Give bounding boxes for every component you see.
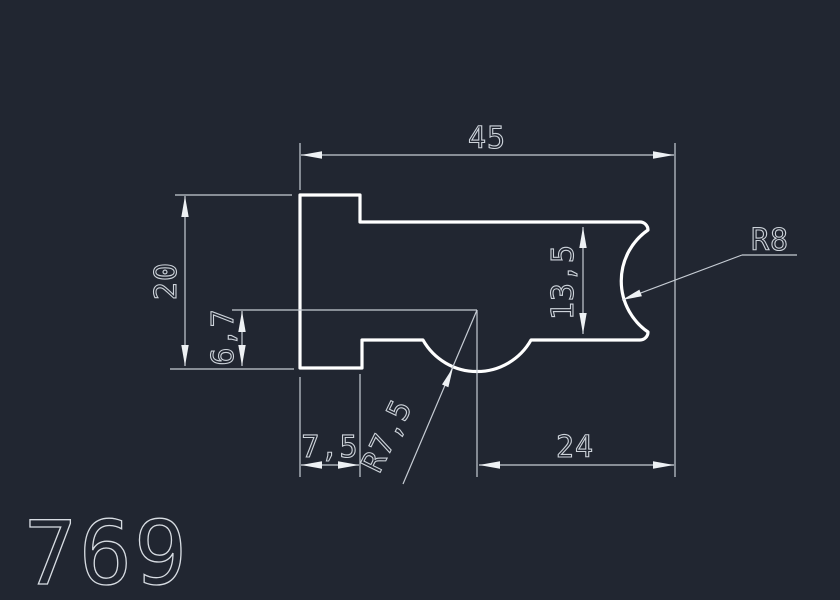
dim-label-right-width: 24 <box>556 430 594 465</box>
dim-label-left-height: 20 <box>149 262 184 300</box>
dim-label-right-height: 13,5 <box>546 244 581 320</box>
dim-label-step-height: 6,7 <box>206 308 241 365</box>
arrowhead-20-top <box>181 196 188 217</box>
dim-label-total-width: 45 <box>468 121 506 156</box>
arrowhead-r8 <box>622 290 642 300</box>
arrowhead-20-bottom <box>181 345 188 366</box>
dim-label-radius-bottom: R7,5 <box>355 394 420 478</box>
dim-label-radius-right: R8 <box>751 223 789 258</box>
leader-line-r75 <box>403 310 477 484</box>
arrowhead-45-right <box>653 151 674 158</box>
arrowhead-45-left <box>301 151 322 158</box>
part-number: 769 <box>24 502 189 600</box>
arrowhead-r75 <box>442 368 453 388</box>
cad-drawing-viewport[interactable]: 45 20 6,7 13,5 7,5 24 R8 R7,5 769 <box>0 0 840 600</box>
arrowhead-24-left <box>479 461 500 468</box>
arrowhead-24-right <box>653 461 674 468</box>
drawing-canvas[interactable]: 45 20 6,7 13,5 7,5 24 R8 R7,5 769 <box>0 0 840 600</box>
dim-label-tab-width: 7,5 <box>301 430 358 465</box>
profile-outline <box>300 195 648 372</box>
